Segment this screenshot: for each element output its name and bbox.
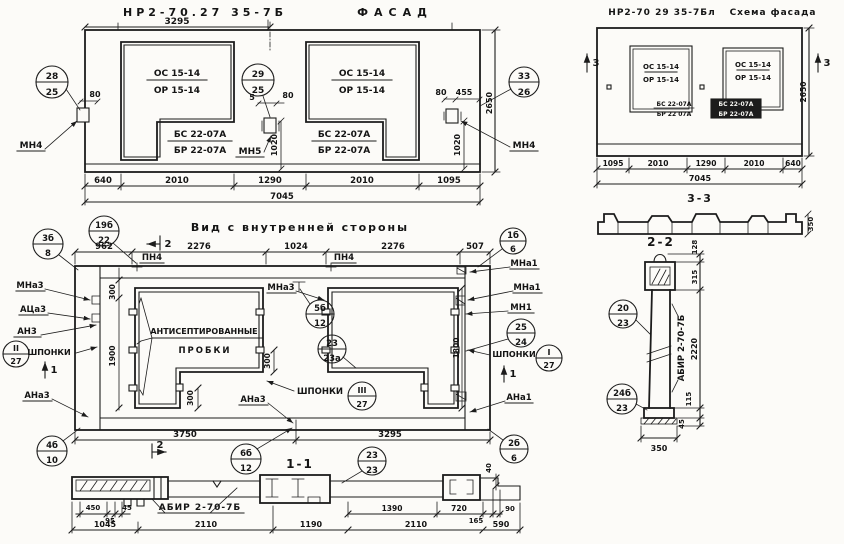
anchor-dot (607, 85, 611, 89)
scheme-sill1-bottom: БР 22 07А (657, 111, 692, 118)
dim-45: 45 (678, 419, 686, 429)
s22-top-block (645, 262, 675, 290)
scheme-view: НР2-70 29 35-7Бл Схема фасада ОС 15-14 О… (587, 8, 831, 237)
inner-view: Вид с внутренней стороны АНТИСЕПТИРОВАНН… (3, 216, 562, 483)
label-mn4-right: МН4 (513, 141, 536, 151)
section33-profile (598, 214, 802, 234)
label-ana3-left: АНа3 (24, 391, 49, 401)
s22-foot (644, 408, 674, 418)
dim-590: 590 (493, 520, 510, 529)
balloon-23-23: 23 23 (342, 447, 386, 483)
balloon-top: 23 (326, 339, 338, 349)
inner-title: Вид с внутренней стороны (191, 221, 409, 234)
extension-lines (348, 490, 500, 517)
facade-opening-right (306, 42, 419, 160)
sill2-mark-bottom: БР 22-07А (318, 146, 370, 156)
balloon-top: 24б (613, 388, 631, 399)
dim-3295: 3295 (164, 17, 189, 27)
opening1-mark-bottom: ОР 15-14 (154, 86, 200, 96)
inner-opening-right (328, 288, 458, 408)
balloon-top: 3б (42, 233, 54, 244)
dim-1390: 1390 (382, 504, 403, 513)
dim-115: 115 (685, 392, 693, 407)
dim-350: 350 (651, 444, 668, 453)
dim-90: 90 (505, 505, 515, 513)
balloon-bottom: 23а (323, 354, 341, 364)
scheme-title-name: Схема фасада (730, 8, 817, 18)
cut-marker-1-left: 1 (51, 365, 58, 376)
dim-1024: 1024 (284, 242, 308, 252)
dim-1095: 1095 (603, 159, 624, 168)
anchor-plate-left (77, 108, 89, 122)
balloon-20-23: 20 23 (609, 300, 650, 334)
dim-2276b: 2276 (381, 242, 405, 252)
dim-507: 507 (466, 242, 484, 252)
scheme-op1-top: ОС 15-14 (643, 63, 679, 71)
dim-3295: 3295 (378, 430, 402, 440)
label-mn5: МН5 (239, 147, 262, 157)
balloon-bottom: 27 (10, 357, 21, 366)
sill1-mark-bottom: БР 22-07А (174, 146, 226, 156)
dim-300-step: 300 (186, 390, 195, 406)
hatch (80, 481, 147, 491)
dim-2110b: 2110 (405, 520, 428, 529)
note-leaders (141, 298, 152, 395)
sill2-mark-top: БС 22-07А (318, 130, 370, 140)
balloon-top: 33 (518, 72, 531, 82)
dim-350: 350 (807, 217, 815, 232)
dim-1290: 1290 (696, 159, 717, 168)
balloon-3b-8: 3б 8 (33, 229, 78, 270)
balloon-24b-23: 24б 23 (607, 384, 647, 414)
scheme-sill2-top: БС 22-07А (719, 101, 754, 108)
balloon-III-27: III 27 (348, 382, 376, 410)
section3-marker-left: 3 (593, 58, 600, 69)
facade-view: НР2-70.27 35-7Б ФАСАД ОС 15-14 ОР 15-14 … (17, 6, 539, 205)
balloon-6b-12: 6б 12 (231, 428, 292, 474)
opening2-mark-bottom: ОР 15-14 (339, 86, 385, 96)
lifting-hook (654, 255, 666, 263)
dim-7045: 7045 (689, 174, 712, 183)
balloon-bottom: 12 (240, 464, 252, 474)
dim-80-right: 80 (435, 88, 447, 97)
dim-1095: 1095 (437, 176, 461, 186)
hatch (652, 269, 669, 285)
scheme-title-code: НР2-70 29 35-7Бл (608, 8, 715, 18)
s22-strip (649, 290, 670, 408)
dim-2220: 2220 (690, 337, 699, 360)
label-mna1-a: МНа1 (510, 259, 537, 269)
label-an3: АН3 (17, 327, 37, 337)
note-line1: АНТИСЕПТИРОВАННЫЕ (150, 327, 257, 336)
balloon-bottom: 27 (356, 400, 367, 409)
dim-640: 640 (94, 176, 112, 186)
label-shponki-left: ШПОНКИ (27, 348, 70, 357)
balloon-bottom: 12 (314, 319, 326, 329)
dim-300-mid: 300 (263, 353, 272, 369)
label-mna3-left: МНа3 (16, 281, 43, 291)
balloon-bottom: 26 (518, 88, 531, 98)
balloon-top: II (13, 344, 19, 353)
dim-315: 315 (691, 270, 699, 285)
dim-455: 455 (456, 88, 473, 97)
facade-title-name: ФАСАД (357, 6, 433, 19)
balloon-bottom: 6 (510, 245, 516, 255)
dim-80-left: 80 (89, 90, 101, 99)
balloon-bottom: 23 (616, 404, 628, 414)
sill1-mark-top: БС 22-07А (174, 130, 226, 140)
anchor-plate-right (446, 109, 458, 123)
facade-opening-left (121, 42, 234, 160)
scheme-op2-bottom: ОР 15-14 (735, 74, 771, 82)
balloon-bottom: 23 (617, 319, 629, 329)
dim-7045: 7045 (270, 192, 294, 202)
balloon-top: 23 (366, 451, 378, 461)
dim-1900: 1900 (108, 346, 117, 367)
balloon-top: III (358, 386, 367, 395)
balloon-bottom: 23 (366, 466, 378, 476)
section22-title: 2-2 (647, 235, 675, 249)
cut-marker-2-bottom: 2 (157, 440, 164, 451)
balloon-I-27: I 27 (536, 345, 562, 371)
balloon-bottom: 10 (46, 456, 58, 466)
dim-45: 45 (122, 504, 132, 512)
note-line2: ПРОБКИ (178, 346, 231, 356)
opening1-mark-top: ОС 15-14 (154, 69, 200, 79)
dim-1020-mid: 1020 (270, 133, 279, 156)
dim-1190: 1190 (300, 520, 323, 529)
balloon-II-27: II 27 (3, 341, 29, 367)
balloon-top: 19б (95, 220, 113, 231)
balloon-bottom: 27 (543, 361, 554, 370)
balloon-28-25: 28 25 (36, 66, 80, 110)
anchor-dot (700, 85, 704, 89)
extension-lines (641, 426, 677, 442)
dim-1800: 1800 (452, 338, 461, 359)
dim-165: 165 (469, 517, 484, 525)
dim-40: 40 (485, 463, 493, 473)
s11-slab1 (168, 481, 260, 497)
balloon-top: 20 (617, 304, 629, 314)
balloon-bottom: 25 (46, 88, 59, 98)
scheme-sill2-bottom: БР 22-07А (719, 111, 754, 118)
dim-5: 5 (249, 93, 255, 102)
facade-title-code: НР2-70.27 35-7Б (123, 6, 287, 19)
balloon-bottom: 24 (515, 338, 527, 348)
s11-slab2 (330, 481, 443, 497)
label-shponki-mid: ШПОНКИ (297, 387, 343, 397)
scheme-dim-2650: 2650 (799, 82, 808, 103)
balloon-4b-10: 4б 10 (37, 428, 80, 466)
section11-title: 1-1 (286, 457, 314, 471)
extension-lines (75, 252, 490, 264)
facade-opening-left-inner (124, 45, 231, 157)
balloon-bottom: 6 (511, 454, 517, 464)
s11-right-block (443, 475, 480, 500)
scheme-panel-outline (597, 28, 802, 156)
balloon-top: 4б (46, 440, 58, 451)
balloon-top: I (548, 348, 551, 357)
dim-1290: 1290 (258, 176, 282, 186)
section3-marker-right: 3 (824, 58, 831, 69)
dim-1045: 1045 (94, 520, 117, 529)
balloon-19b-22: 19б 22 (89, 216, 136, 263)
dim-2110a: 2110 (195, 520, 218, 529)
dim-3750: 3750 (173, 430, 197, 440)
balloon-25-24: 25 24 (466, 319, 535, 351)
opening2-mark-top: ОС 15-14 (339, 69, 385, 79)
dim-2650: 2650 (485, 91, 494, 114)
balloon-29-25: 29 25 (242, 64, 274, 117)
label-pn4-left: ПН4 (142, 253, 162, 263)
s11-mark-label: АБИР 2-70-7Б (159, 503, 241, 513)
dim-300-left: 300 (108, 284, 117, 300)
drawing-sheet: НР2-70.27 35-7Б ФАСАД ОС 15-14 ОР 15-14 … (0, 0, 844, 544)
dim-2010: 2010 (744, 159, 765, 168)
balloon-top: 28 (46, 72, 59, 82)
dim-640: 640 (785, 159, 801, 168)
cut-marker-2-top: 2 (165, 239, 172, 250)
facade-opening-right-inner (309, 45, 416, 157)
label-mna3-mid: МНа3 (267, 283, 294, 293)
label-ana3-mid: АНа3 (240, 395, 265, 405)
label-ana1: АНа1 (506, 393, 531, 403)
label-mn4-left: МН4 (20, 141, 43, 151)
scheme-op1-bottom: ОР 15-14 (643, 76, 679, 84)
balloon-top: 2б (508, 438, 520, 449)
dim-720: 720 (451, 504, 467, 513)
dim-80-mid: 80 (282, 91, 294, 100)
balloon-top: 5б (314, 303, 326, 314)
scheme-op2-top: ОС 15-14 (735, 61, 771, 69)
dim-2276a: 2276 (187, 242, 211, 252)
s22-mark-label: АБИР 2-70-7Б (677, 315, 687, 382)
dim-450: 450 (86, 504, 101, 512)
dim-128: 128 (691, 240, 699, 255)
section-2-2: 2-2 128 315 2220 115 45 350 АБИР 2-70-7Б… (607, 235, 704, 453)
dim-2010a: 2010 (165, 176, 189, 186)
label-mn1: МН1 (510, 303, 532, 313)
scheme-sill1-top: БС 22-07А (657, 101, 692, 108)
balloon-2b-6: 2б 6 (488, 429, 528, 464)
profile-ribs (618, 222, 768, 234)
balloon-bottom: 22 (98, 236, 110, 246)
label-shponki-right: ШПОНКИ (492, 350, 535, 359)
label-aca3: АЦа3 (20, 305, 46, 315)
label-mna1-b: МНа1 (513, 283, 540, 293)
balloon-top: 6б (240, 448, 252, 459)
cut-marker-1-right: 1 (510, 369, 517, 380)
facade-panel-outline (85, 30, 480, 172)
section33-title: 3-3 (687, 192, 713, 205)
section-1-1: 1-1 40 АБИР 2-70-7Б 450 95 45 1390 720 1… (69, 457, 523, 533)
balloon-top: 1б (507, 230, 519, 241)
dim-2010: 2010 (648, 159, 669, 168)
balloon-bottom: 8 (45, 249, 51, 259)
balloon-top: 29 (252, 70, 265, 80)
anchor-plate-mid (264, 118, 276, 133)
label-pn4-right: ПН4 (334, 253, 354, 263)
dim-1020-right: 1020 (453, 133, 462, 156)
balloon-top: 25 (515, 323, 527, 333)
dim-2010b: 2010 (350, 176, 374, 186)
